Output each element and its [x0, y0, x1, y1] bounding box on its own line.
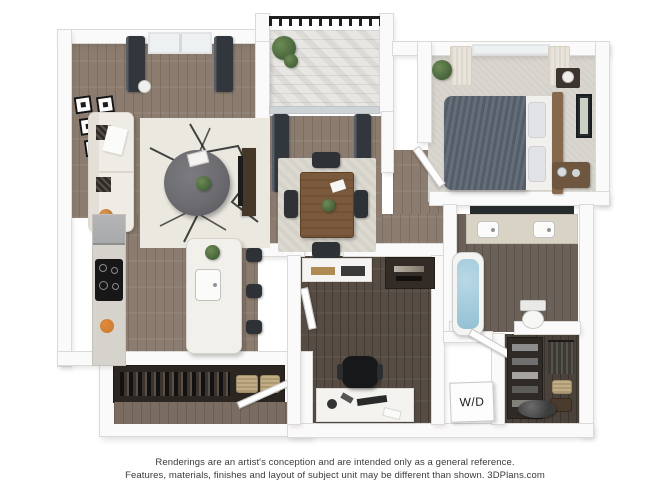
- wall-right-upper: [596, 42, 609, 205]
- bar-stool: [246, 320, 262, 334]
- media-console: [242, 148, 256, 216]
- kitchen-counter: [92, 214, 126, 366]
- double-vanity: [466, 214, 578, 244]
- kitchen-island: [186, 238, 242, 354]
- wall-bottom: [288, 424, 593, 437]
- hall-console-decor: [394, 266, 424, 272]
- dresser-decor: [572, 169, 580, 177]
- bedroom-curtain-left: [450, 46, 472, 86]
- sofa-pillow-2: [96, 177, 111, 192]
- hall-console-niche: [386, 258, 434, 288]
- den-shelf-books: [311, 267, 335, 275]
- floorplan-rendering: W/D: [0, 0, 670, 450]
- desk-lamp-arm: [340, 392, 353, 403]
- nightstand: [556, 68, 580, 88]
- sliding-door-track: [269, 106, 380, 114]
- bed-pillow: [528, 102, 546, 138]
- den-shelf: [302, 258, 372, 282]
- burner: [111, 267, 118, 274]
- burner: [112, 283, 119, 290]
- bar-stool: [246, 248, 262, 262]
- wall-bedroom-left: [418, 42, 431, 142]
- wall-left: [58, 30, 71, 366]
- washer-dryer-unit: W/D: [449, 381, 494, 423]
- office-chair-arm-right: [377, 364, 383, 380]
- dining-chair-top: [312, 152, 340, 168]
- balcony-plant-2: [284, 54, 298, 68]
- dining-chair-bottom: [312, 242, 340, 258]
- disclaimer-line-2: Features, materials, finishes and layout…: [0, 469, 670, 482]
- floor-lamp: [138, 80, 151, 93]
- desk-keyboard: [357, 395, 388, 406]
- tv: [238, 156, 243, 206]
- bathtub-water: [457, 259, 479, 329]
- disclaimer: Renderings are an artist's conception an…: [0, 456, 670, 482]
- bedroom-wall-art: [576, 94, 592, 138]
- bedroom-window: [472, 44, 550, 55]
- sofa-cushion-seam: [99, 171, 133, 173]
- office-chair-arm-left: [337, 364, 343, 380]
- hall-console-decor-2: [396, 276, 422, 281]
- vanity-sink-left: [477, 221, 499, 238]
- island-plant: [205, 245, 220, 260]
- bar-stool: [246, 284, 262, 298]
- table-centerpiece-plant: [322, 199, 335, 212]
- vanity-mirror: [470, 206, 574, 214]
- wall-art-print: [580, 98, 588, 134]
- folded-clothes: [512, 386, 538, 393]
- desk-papers: [382, 407, 402, 420]
- dining-chair-right: [354, 190, 368, 218]
- picture-frame: [74, 95, 93, 114]
- wall-dining-right-lower: [382, 112, 393, 172]
- closet-basket: [552, 380, 572, 394]
- island-sink: [195, 269, 221, 301]
- entry-basket: [236, 375, 258, 393]
- bedroom-plant: [432, 60, 452, 80]
- washer-dryer-label: W/D: [459, 395, 484, 410]
- desk: [316, 388, 414, 422]
- entry-closet-books: [120, 372, 230, 396]
- folded-clothes: [512, 372, 538, 379]
- den-shelf-box: [341, 266, 365, 276]
- hanging-clothes: [548, 340, 574, 374]
- table-papers: [330, 179, 346, 193]
- bed-pillow-2: [528, 146, 546, 182]
- balcony-railing: [269, 16, 380, 26]
- vanity-sink-right: [533, 221, 555, 238]
- dining-table: [300, 172, 354, 238]
- bathtub: [452, 252, 484, 336]
- burner: [99, 281, 108, 290]
- closet-pouf: [518, 400, 556, 418]
- disclaimer-line-1: Renderings are an artist's conception an…: [0, 456, 670, 469]
- dining-chair-left: [284, 190, 298, 218]
- nightstand-lamp: [562, 71, 574, 83]
- living-window: [148, 32, 212, 54]
- wall-bedroom-bath-divider: [430, 192, 609, 205]
- living-curtain-right: [214, 36, 233, 92]
- fruit-bowl: [100, 319, 114, 333]
- living-window-mullion: [179, 34, 182, 52]
- refrigerator: [93, 215, 125, 245]
- burner: [99, 264, 107, 272]
- office-chair: [342, 356, 378, 388]
- dresser-mirror: [557, 167, 567, 177]
- toilet-bowl: [522, 310, 544, 329]
- folded-clothes: [512, 344, 538, 351]
- entry-floor: [114, 402, 298, 424]
- wall-balcony-right: [380, 14, 393, 112]
- wall-den-left: [288, 256, 300, 424]
- folded-clothes: [512, 358, 538, 365]
- ottoman-plant: [196, 176, 211, 191]
- bed-duvet: [444, 96, 526, 190]
- dresser: [552, 162, 590, 188]
- cooktop: [95, 259, 123, 301]
- desk-lamp: [327, 399, 337, 409]
- page: { "floorplan": { "type": "3d-apartment-f…: [0, 0, 670, 503]
- wall-right-lower: [580, 205, 593, 436]
